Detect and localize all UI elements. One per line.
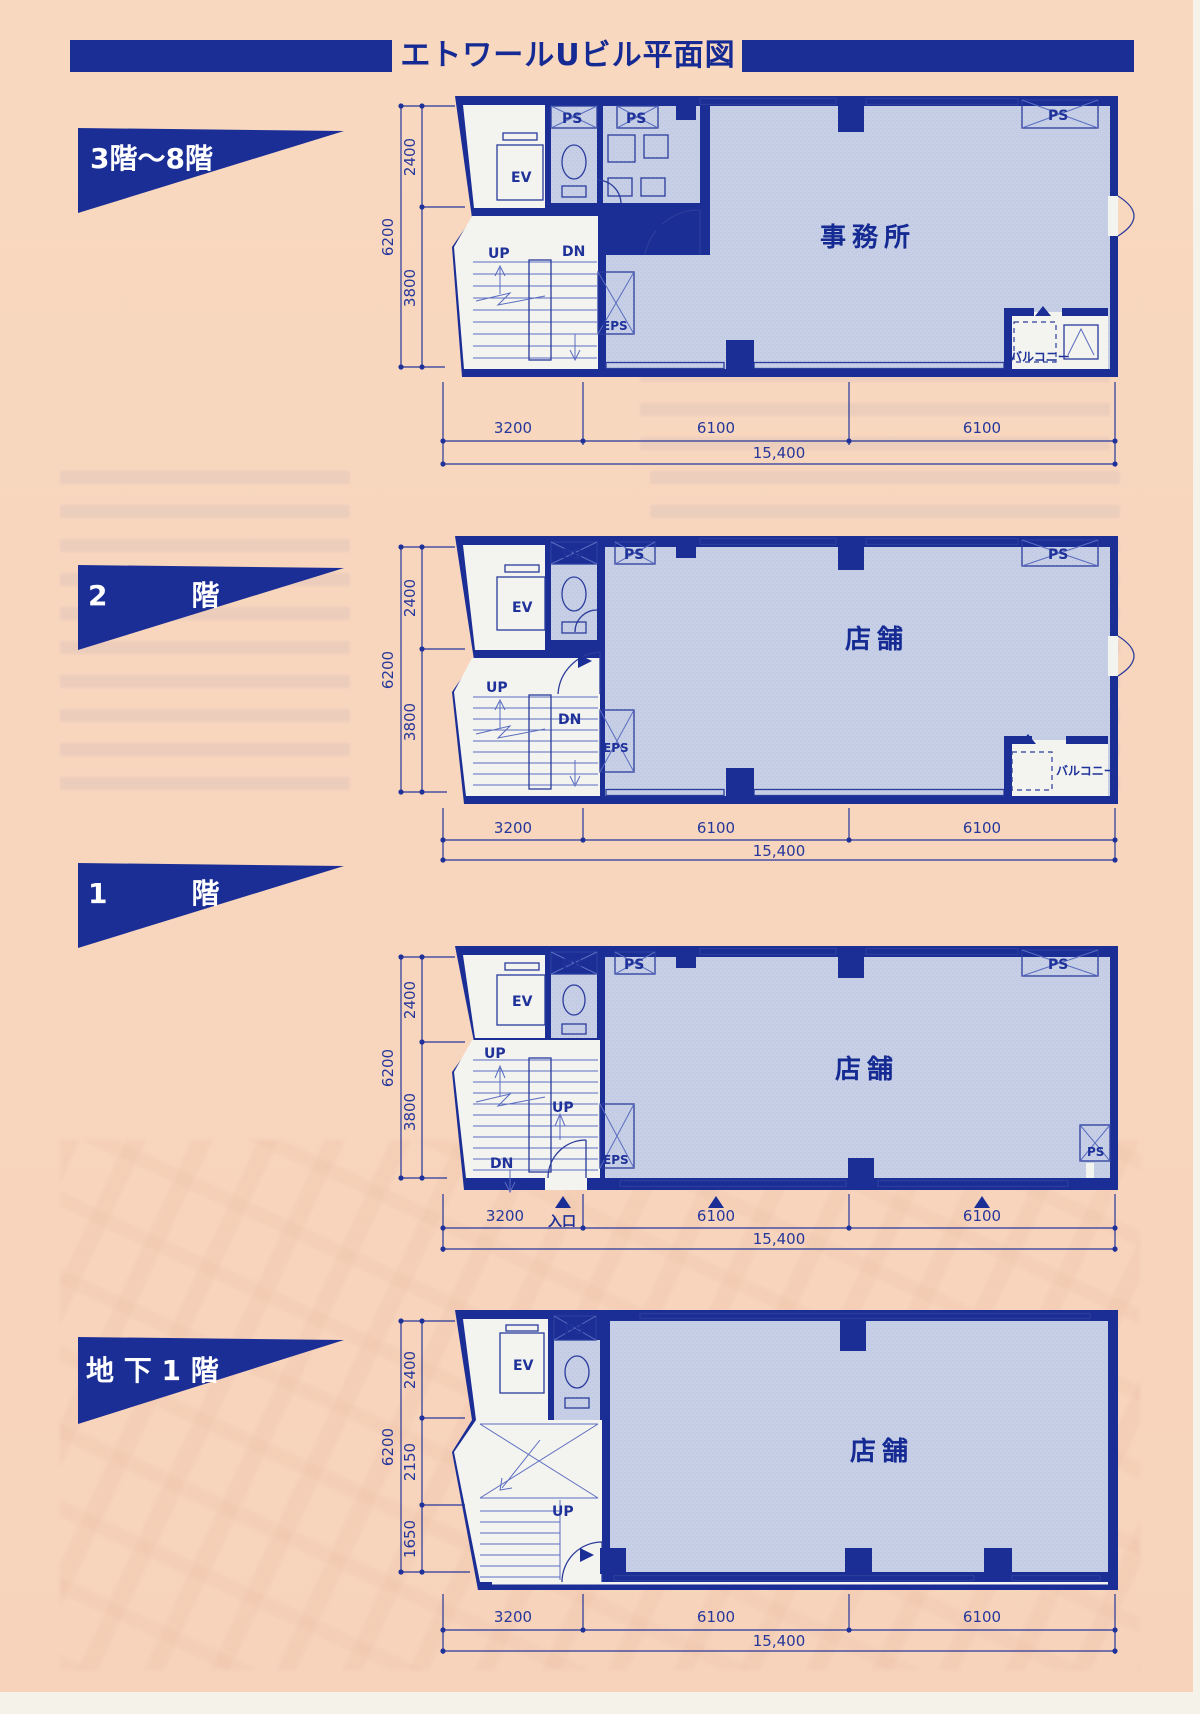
floor-pennant-label: 地 下 1 階 xyxy=(86,1354,219,1387)
stairs-up2-label: UP xyxy=(552,1100,574,1116)
svg-text:EPS: EPS xyxy=(603,741,629,755)
svg-text:EPS: EPS xyxy=(602,319,628,333)
dimension-left: 6200 2400 3800 xyxy=(379,103,465,369)
svg-text:PS: PS xyxy=(562,957,582,973)
svg-text:3800: 3800 xyxy=(401,703,419,741)
dimension-left: 6200 2400 3800 xyxy=(379,544,465,794)
stairs-up-label: UP xyxy=(488,246,510,262)
svg-text:PS: PS xyxy=(1087,1145,1104,1159)
svg-text:6100: 6100 xyxy=(697,819,735,837)
svg-text:3200: 3200 xyxy=(494,819,532,837)
room-label: 店舗 xyxy=(850,1437,914,1467)
page-edge-right xyxy=(1193,0,1200,1714)
stairs-down-label: DN xyxy=(562,244,585,260)
svg-text:PS: PS xyxy=(626,111,646,127)
svg-text:3800: 3800 xyxy=(401,1093,419,1131)
balcony-label: バルコニー xyxy=(1010,350,1070,364)
svg-text:6100: 6100 xyxy=(963,419,1001,437)
stairs-up-label: UP xyxy=(484,1046,506,1062)
svg-text:6100: 6100 xyxy=(963,1207,1001,1225)
stairs-up-label: UP xyxy=(552,1504,574,1520)
svg-text:6100: 6100 xyxy=(963,1608,1001,1626)
svg-text:6100: 6100 xyxy=(697,1207,735,1225)
floorplan-drawing: 3階〜8階 EV PS PS xyxy=(0,0,1200,1714)
room-label: 店舗 xyxy=(845,625,909,655)
svg-text:2400: 2400 xyxy=(401,138,419,176)
svg-text:15,400: 15,400 xyxy=(753,1230,806,1248)
floor-pennant-label: 2 階 xyxy=(88,579,219,612)
svg-text:2150: 2150 xyxy=(401,1443,419,1481)
svg-text:PS: PS xyxy=(624,957,644,973)
stairs-down-label: DN xyxy=(490,1156,513,1172)
elevator-label: EV xyxy=(513,1358,534,1374)
svg-text:EPS: EPS xyxy=(603,1153,629,1167)
floorplan-2f: 2 階 EV PS PS PS xyxy=(78,536,1134,863)
svg-text:2400: 2400 xyxy=(401,1351,419,1389)
room-label: 事務所 xyxy=(820,223,916,253)
svg-text:6200: 6200 xyxy=(379,1428,397,1466)
svg-text:3800: 3800 xyxy=(401,269,419,307)
svg-text:PS: PS xyxy=(1048,108,1068,124)
svg-text:6100: 6100 xyxy=(963,819,1001,837)
svg-text:6100: 6100 xyxy=(697,419,735,437)
dimension-bottom: 3200 6100 6100 15,400 xyxy=(440,1594,1117,1654)
balcony: バルコニー xyxy=(1004,306,1108,377)
svg-text:3200: 3200 xyxy=(494,419,532,437)
svg-text:6200: 6200 xyxy=(379,218,397,256)
svg-text:2400: 2400 xyxy=(401,981,419,1019)
room-label: 店舗 xyxy=(835,1055,899,1085)
svg-text:6100: 6100 xyxy=(697,1608,735,1626)
dimension-left: 6200 2400 3800 xyxy=(379,954,465,1180)
svg-text:PS: PS xyxy=(624,547,644,563)
floorplan-1f: 1 階 EV PS PS PS xyxy=(78,863,1118,1252)
balcony: バルコニー xyxy=(1004,734,1116,800)
svg-text:15,400: 15,400 xyxy=(753,1632,806,1650)
svg-text:PS: PS xyxy=(562,111,582,127)
dimension-bottom: 3200 6100 6100 15,400 xyxy=(440,1194,1117,1252)
svg-text:6200: 6200 xyxy=(379,651,397,689)
elevator-label: EV xyxy=(512,600,533,616)
svg-text:1650: 1650 xyxy=(401,1520,419,1558)
balcony-label: バルコニー xyxy=(1056,764,1116,778)
svg-text:3200: 3200 xyxy=(486,1207,524,1225)
svg-text:PS: PS xyxy=(1048,547,1068,563)
scanned-floorplan-page: エトワールUビル平面図 3階〜8階 EV xyxy=(0,0,1200,1714)
floor-pennant-label: 3階〜8階 xyxy=(90,142,213,175)
svg-text:PS: PS xyxy=(1048,957,1068,973)
entrance-marker xyxy=(555,1196,571,1208)
elevator-label: EV xyxy=(511,170,532,186)
page-edge-bottom xyxy=(0,1692,1200,1714)
stairs-up-label: UP xyxy=(486,680,508,696)
svg-text:6200: 6200 xyxy=(379,1049,397,1087)
elevator-label: EV xyxy=(512,994,533,1010)
floorplan-b1: 地 下 1 階 EV PS UP xyxy=(78,1310,1118,1654)
svg-text:15,400: 15,400 xyxy=(753,444,806,462)
floorplan-3f-8f: 3階〜8階 EV PS PS xyxy=(78,96,1134,467)
dimension-bottom: 3200 6100 6100 15,400 xyxy=(440,382,1117,467)
dimension-bottom: 3200 6100 6100 15,400 xyxy=(440,808,1117,863)
svg-text:PS: PS xyxy=(562,547,582,563)
floor-pennant-label: 1 階 xyxy=(88,877,219,910)
svg-text:2400: 2400 xyxy=(401,579,419,617)
svg-text:PS: PS xyxy=(564,1322,584,1338)
svg-text:15,400: 15,400 xyxy=(753,842,806,860)
svg-text:3200: 3200 xyxy=(494,1608,532,1626)
stairs-down-label: DN xyxy=(558,712,581,728)
